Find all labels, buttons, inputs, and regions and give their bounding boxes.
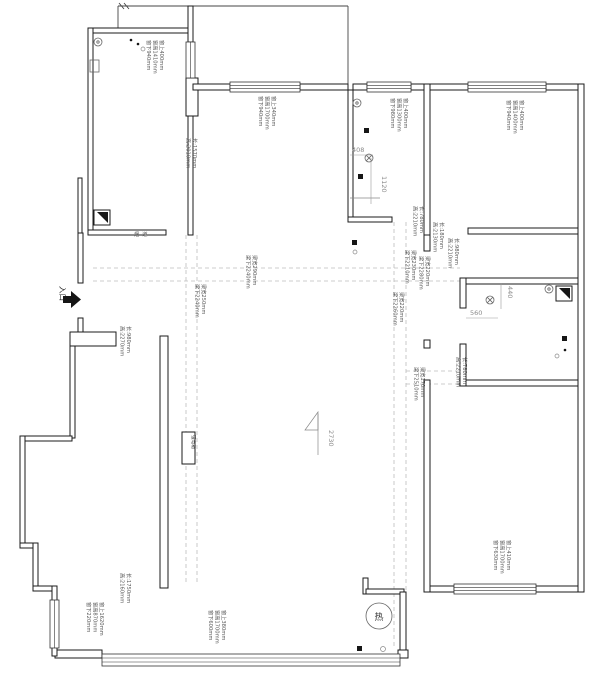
annotation-line: 梁下2240mm [245,255,253,289]
small-fixture-icon [555,354,559,358]
fixture-icon [353,250,357,254]
flue-label: 烟道 [134,230,150,238]
window-annotations: 窗上400mm 窗高1410mm 窗下940mm 窗上340mm 窗高1700m… [85,40,526,644]
outlet-icon [364,128,369,133]
entrance-marker: 入口 [58,286,81,308]
wall-segment [188,116,193,235]
opening-annotation: 长:180mm 高:2130mm [432,222,447,252]
window-left-vertical [50,600,59,648]
wall-segment [188,6,193,42]
opening-annotation: 长:1570mm 高:2010mm [185,138,200,168]
wall-segment [20,436,72,441]
opening-annotation: 长:780mm 高:2210mm [412,206,427,236]
window-bathroom [367,82,411,92]
floor-plan-canvas: 热 2730 入口 强电箱 烟道 408 1120 440 560 [0,0,600,687]
window-frame [230,82,300,92]
annotation-line: 窗上400mm [402,98,410,128]
annotation-line: 高:2210mm [455,357,463,387]
wall-segment [430,586,454,592]
water-heater-icon: 热 [366,603,392,629]
annotation-line: 梁宽230mm [410,250,418,280]
annotation-line: 梁宽220mm [398,292,406,322]
wall-segment [353,84,367,90]
annotation-line: 梁下2240mm [194,284,202,318]
beam-lines [93,222,462,648]
wall-segment [430,84,468,90]
annotation-line: 梁宽220mm [424,256,432,286]
wall-segment [55,650,102,658]
electrical-box-label: 强电箱 [190,435,197,449]
annotation-line: 窗下600mm [207,610,215,640]
wall-segment [88,230,166,235]
wall-segment [348,217,392,222]
window-annotation: 窗上400mm 窗高1400mm 窗下940mm [505,100,526,134]
annotation-line: 窗高1300mm [396,98,404,132]
window-bottom-long [102,654,400,666]
window-dining [230,82,300,92]
opening-annotation: 长:1750mm 高:2160mm [119,573,134,603]
annotation-line: 窗上400mm [518,100,526,130]
wall-segment [460,278,466,308]
wall-segment [70,332,116,346]
annotation-line: 窗下630mm [492,540,500,570]
spotlight-dot-icon [137,43,140,46]
wall-segment [33,543,38,590]
opening-annotation: 长:980mm 高:2210mm [447,238,462,268]
annotation-line: 窗上1620mm [98,602,106,636]
small-fixture-icon [141,47,145,51]
ceiling-light-icon [353,99,361,107]
wall-segment [460,278,578,284]
floor-plan-page: 热 2730 入口 强电箱 烟道 408 1120 440 560 [0,0,600,687]
window-master [454,584,536,594]
wall-segment [78,178,82,235]
small-fixture-icon [381,647,386,652]
annotation-line: 长:180mm [438,222,446,249]
annotation-line: 窗下980mm [389,98,397,128]
annotation-line: 高:2270mm [119,326,127,356]
annotation-line: 窗高1400mm [512,100,520,134]
ceiling-light-icon [356,102,358,104]
annotation-line: 窗高1700mm [499,540,507,574]
beam-annotation: 梁宽250mm 梁下2240mm [194,284,209,318]
water-heater-label: 热 [374,611,383,623]
dim-408: 408 [352,146,364,154]
wall-segment [20,436,25,548]
window-frame [454,584,536,594]
fixture-icon [352,240,357,245]
ceiling-light-icon [545,285,553,293]
annotation-line: 长:980mm [453,238,461,265]
dim-440: 440 [506,286,514,298]
ceiling-light-icon [94,38,102,46]
beam-annotation: 梁宽230mm 梁下2210mm [404,250,419,284]
annotation-line: 高:2210mm [447,238,455,268]
annotation-line: 窗高870mm [92,602,100,632]
annotation-line: 高:2130mm [432,222,440,252]
annotation-line: 高:2010mm [185,138,193,168]
beam-annotation: 梁宽220mm 梁下2260mm [392,292,407,326]
annotation-line: 梁下2510mm [413,367,421,401]
spotlight-dot-icon [564,349,567,352]
beam-annotation: 梁宽220mm 梁下2280mm [418,256,433,290]
annotation-line: 高:2160mm [119,573,127,603]
window-annotation: 窗上380mm 窗高1700mm 窗下600mm [207,610,228,644]
wall-segment [578,84,584,592]
dim-1120: 1120 [380,176,388,193]
wall-segment [424,235,430,251]
elevation-flag-icon: 2730 [305,412,335,455]
window-frame [468,82,546,92]
window-annotation: 窗上340mm 窗高1700mm 窗下940mm [257,96,278,130]
window-annotation: 窗上1620mm 窗高870mm 窗下220mm [85,602,106,636]
annotation-line: 长:1750mm [125,573,133,603]
electrical-box: 强电箱 [182,432,197,464]
wall-segment [78,233,83,283]
outlet-icon [357,646,362,651]
beam-annotation: 梁宽170mm 梁下2510mm [413,367,428,401]
dim-560: 560 [470,309,482,317]
window-annotation: 窗上400mm 窗高1300mm 窗下980mm [389,98,410,132]
annotation-line: 梁下2260mm [392,292,400,326]
annotation-line: 窗高1700mm [214,610,222,644]
opening-annotation: 长:780mm 高:2210mm [455,357,470,387]
annotation-line: 窗高1410mm [152,40,160,74]
wall-segment [466,380,578,386]
beam-annotations: 梁宽290mm 梁下2240mm 梁宽250mm 梁下2240mm 梁宽230m… [194,250,433,401]
annotation-line: 窗上410mm [505,540,513,570]
annotation-line: 窗上340mm [270,96,278,126]
annotation-line: 窗上380mm [220,610,228,640]
ceiling-light-icon [548,288,550,290]
annotation-line: 窗下940mm [505,100,513,130]
flue-icon [556,286,572,301]
annotation-line: 长:780mm [461,357,469,384]
outlet-icon [358,174,363,179]
flue-icon [94,210,110,225]
annotation-line: 长:980mm [125,326,133,353]
window-top-right [468,82,546,92]
wall-segment [536,586,578,592]
annotation-line: 窗下940mm [145,40,153,70]
annotation-line: 梁宽170mm [419,367,427,397]
ceiling-light-icon [97,41,99,43]
window-frame [102,654,400,666]
annotation-line: 窗上400mm [158,40,166,70]
annotation-line: 窗下940mm [257,96,265,126]
annotation-line: 高:2210mm [412,206,420,236]
spotlight-dot-icon [130,39,133,42]
annotation-line: 窗下220mm [85,602,93,632]
floor-height-label: 2730 [327,430,335,447]
floor-drain-icon [486,296,494,304]
wall-segment [70,346,75,438]
annotation-line: 梁宽290mm [251,255,259,285]
window-annotation: 窗上400mm 窗高1410mm 窗下940mm [145,40,166,74]
opening-annotation: 长:980mm 高:2270mm [119,326,134,356]
annotation-line: 窗高1700mm [264,96,272,130]
window-frame [367,82,411,92]
wall-segment [160,336,168,588]
wall-segment [424,380,430,592]
wall-segment [468,228,578,234]
outlet-icon [562,336,567,341]
wall-segment [88,28,190,33]
flag-triangle [305,412,318,430]
annotation-line: 梁宽250mm [200,284,208,314]
beam-annotation: 梁宽290mm 梁下2240mm [245,255,260,289]
window-annotation: 窗上410mm 窗高1700mm 窗下630mm [492,540,513,574]
wall-segment [366,589,404,594]
annotation-line: 长:780mm [418,206,426,233]
wall-segment [400,592,406,656]
window-top-left-vertical [186,42,195,78]
wall-segment [88,28,93,235]
annotation-line: 梁下2280mm [418,256,426,290]
annotation-line: 梁下2210mm [404,250,412,284]
wall-segment [52,586,57,602]
wall-segment [300,84,348,90]
wall-segment [424,340,430,348]
wall-segment [193,84,230,90]
annotation-line: 长:1570mm [191,138,199,168]
